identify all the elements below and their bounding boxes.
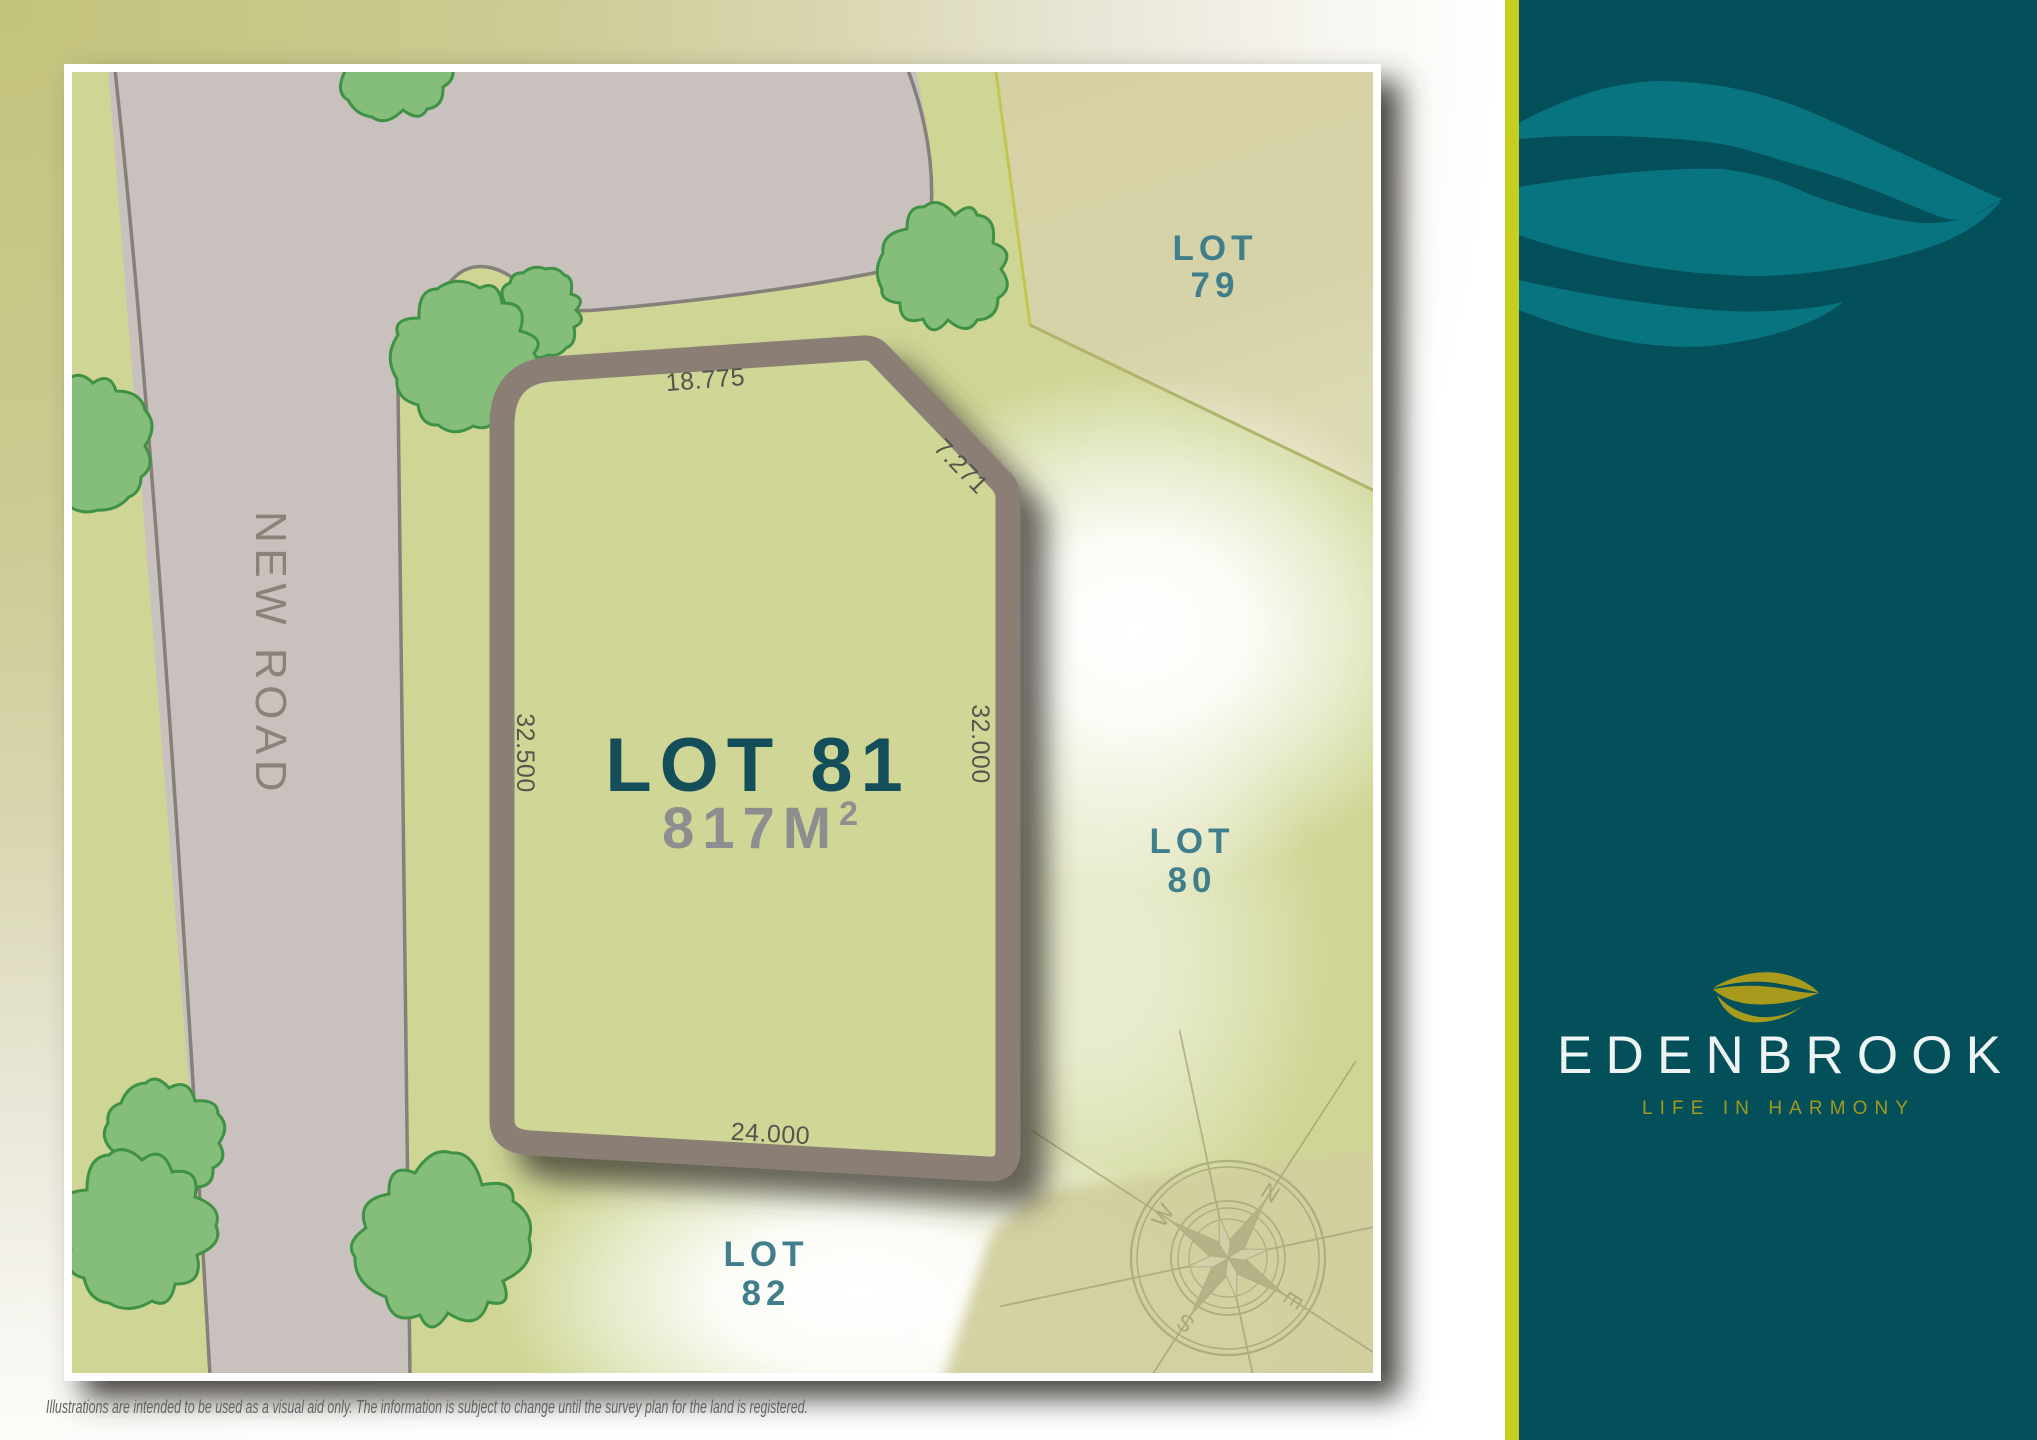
svg-text:NEW ROAD: NEW ROAD: [246, 511, 295, 797]
svg-text:EDENBROOK: EDENBROOK: [1557, 1026, 2001, 1085]
svg-text:82: 82: [742, 1274, 791, 1313]
svg-text:LOT: LOT: [1150, 822, 1235, 861]
svg-text:Illustrations are intended to: Illustrations are intended to be used as…: [46, 1397, 808, 1417]
svg-text:80: 80: [1168, 861, 1217, 900]
svg-text:LOT: LOT: [724, 1235, 809, 1274]
svg-text:LOT: LOT: [1173, 229, 1258, 268]
svg-text:32.000: 32.000: [966, 704, 994, 783]
svg-text:79: 79: [1191, 266, 1240, 305]
svg-text:24.000: 24.000: [730, 1118, 811, 1150]
svg-text:32.500: 32.500: [511, 713, 539, 792]
svg-text:817M2: 817M2: [662, 795, 866, 861]
